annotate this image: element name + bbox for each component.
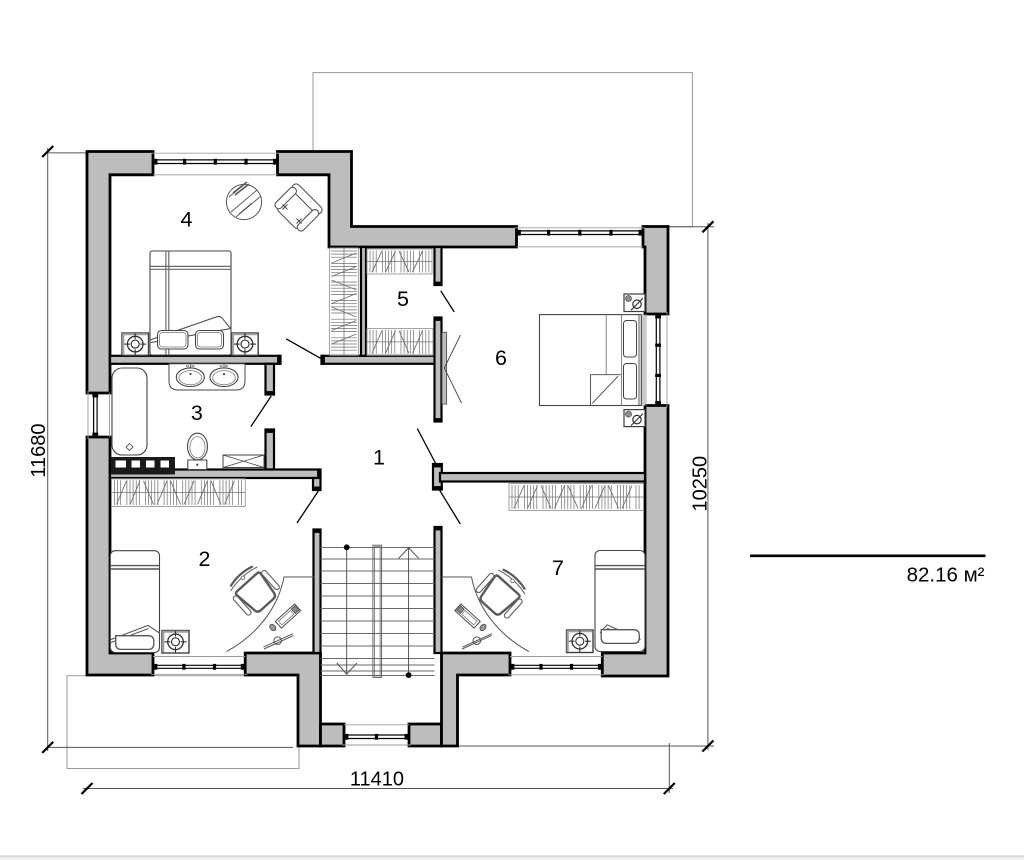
svg-text:1: 1 <box>373 446 385 470</box>
svg-text:6: 6 <box>495 346 507 370</box>
svg-text:4: 4 <box>181 208 193 232</box>
svg-text:11410: 11410 <box>350 769 404 791</box>
svg-text:82.16 м²: 82.16 м² <box>907 564 985 587</box>
svg-text:3: 3 <box>191 401 203 425</box>
svg-text:5: 5 <box>397 287 409 311</box>
svg-text:11680: 11680 <box>28 423 50 477</box>
svg-text:7: 7 <box>552 556 564 580</box>
svg-text:2: 2 <box>199 547 211 571</box>
svg-text:10250: 10250 <box>690 456 712 512</box>
